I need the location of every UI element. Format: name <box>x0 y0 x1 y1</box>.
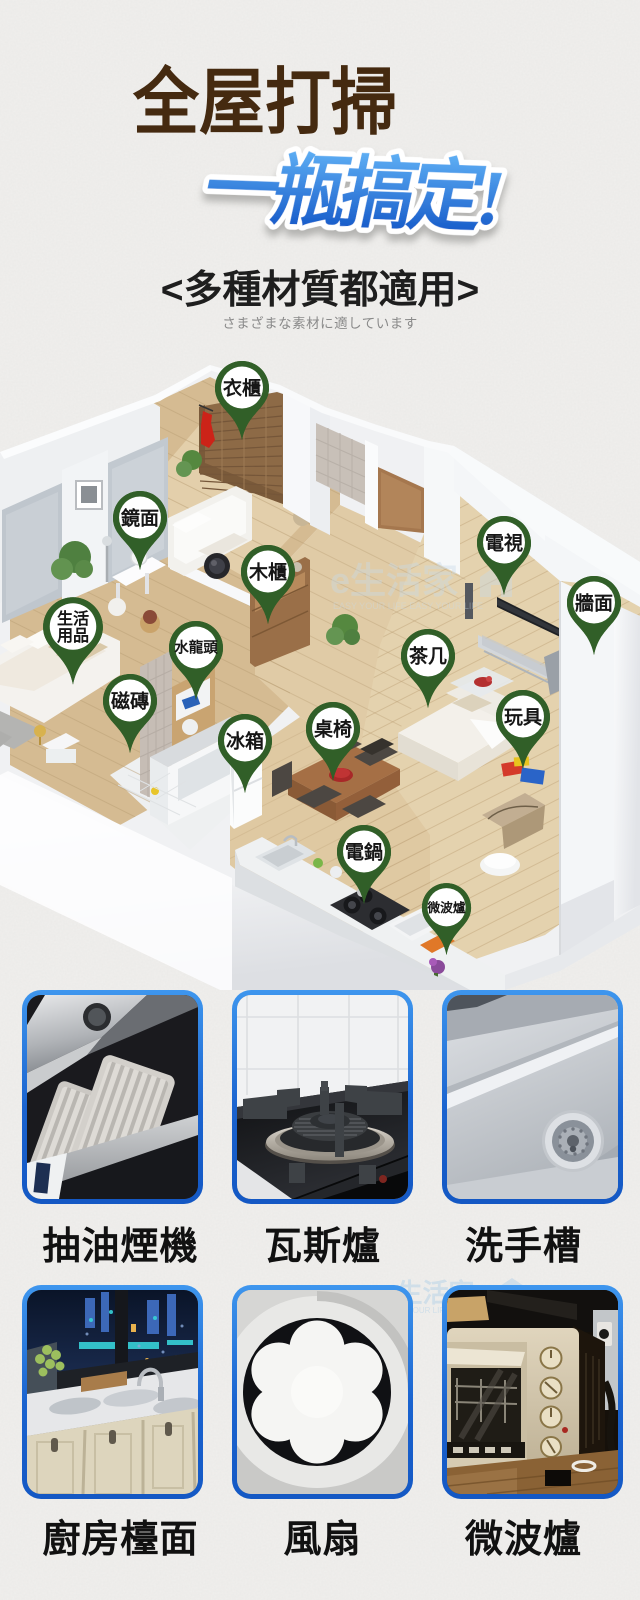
svg-text:玩具: 玩具 <box>504 707 542 729</box>
svg-text:生活: 生活 <box>57 609 89 628</box>
svg-text:微波爐: 微波爐 <box>426 900 465 915</box>
svg-text:牆面: 牆面 <box>575 592 613 615</box>
svg-text:磁磚: 磁磚 <box>111 690 149 713</box>
svg-text:桌椅: 桌椅 <box>314 718 352 741</box>
svg-text:EASY YOUR LIFE EASY YOUR LIFE: EASY YOUR LIFE EASY YOUR LIFE <box>333 601 483 611</box>
svg-text:衣櫃: 衣櫃 <box>223 377 261 400</box>
svg-text:用品: 用品 <box>57 627 89 645</box>
svg-text:冰箱: 冰箱 <box>226 730 264 753</box>
svg-text:鏡面: 鏡面 <box>121 507 159 530</box>
svg-text:e生活家: e生活家 <box>330 560 458 601</box>
svg-text:水龍頭: 水龍頭 <box>174 639 218 657</box>
svg-text:電視: 電視 <box>485 532 523 555</box>
svg-text:電鍋: 電鍋 <box>345 841 383 864</box>
svg-text:茶几: 茶几 <box>409 645 447 668</box>
svg-text:一瓶搞定!: 一瓶搞定! <box>196 145 507 241</box>
svg-text:木櫃: 木櫃 <box>248 561 287 584</box>
